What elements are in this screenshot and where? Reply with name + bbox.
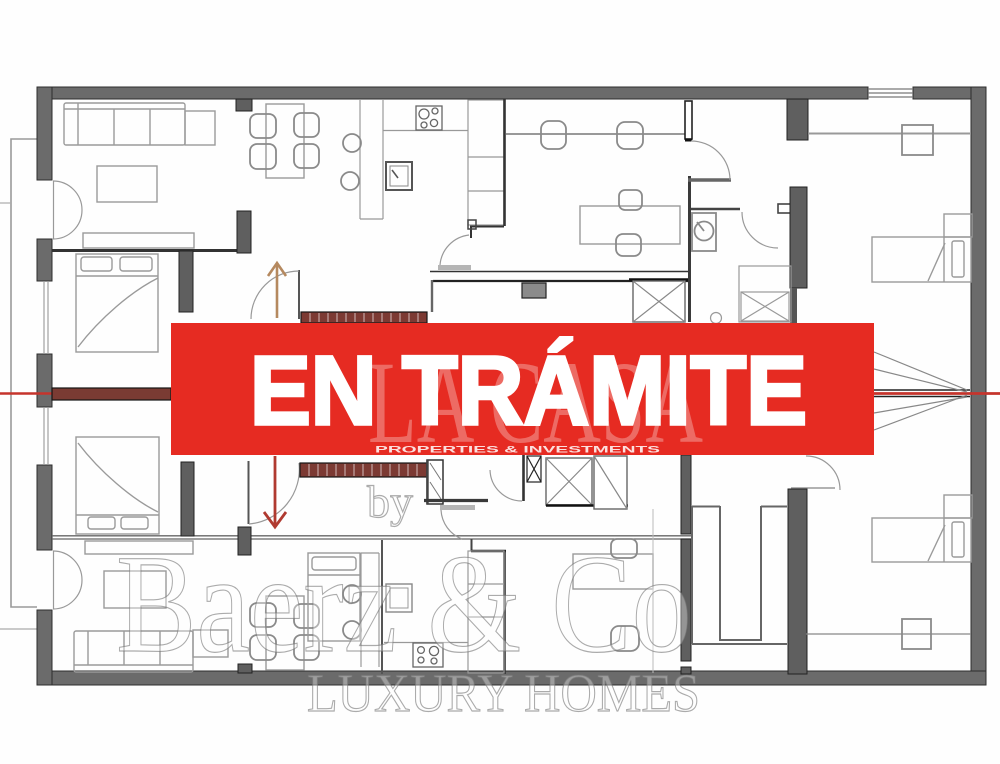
svg-text:Baerz & Co: Baerz & Co xyxy=(116,526,692,682)
svg-text:EN TRÁMITE: EN TRÁMITE xyxy=(250,336,807,445)
svg-text:by: by xyxy=(367,476,413,527)
svg-text:PROPERTIES & INVESTMENTS: PROPERTIES & INVESTMENTS xyxy=(375,445,660,456)
svg-text:LUXURY HOMES: LUXURY HOMES xyxy=(307,663,700,723)
